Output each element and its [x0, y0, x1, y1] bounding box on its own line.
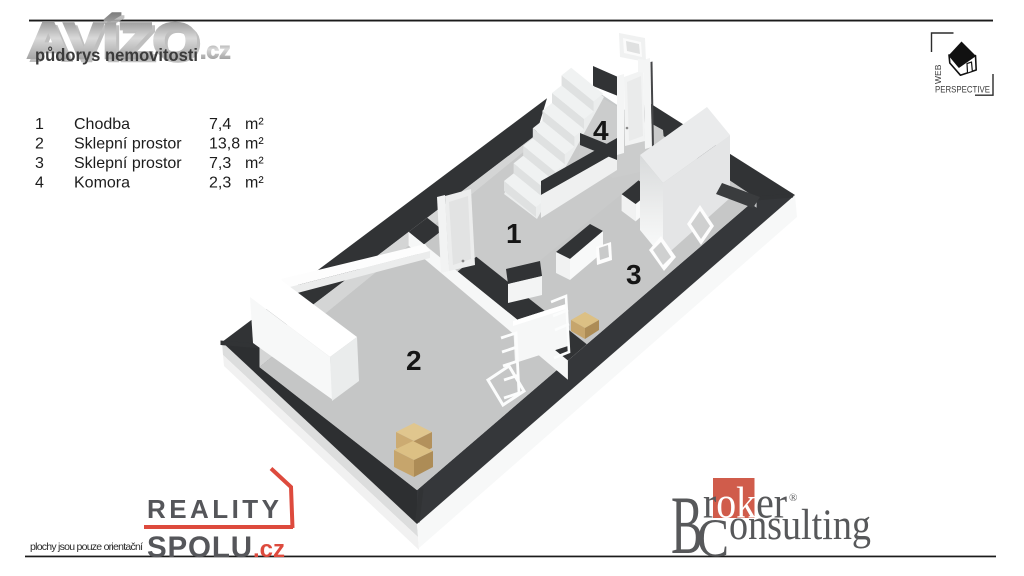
svg-text:onsulting: onsulting	[729, 502, 871, 549]
svg-text:7,3: 7,3	[209, 155, 231, 172]
svg-text:WEB: WEB	[933, 64, 943, 84]
svg-text:1: 1	[35, 116, 44, 133]
svg-text:SPOLU: SPOLU	[147, 531, 252, 564]
svg-text:Chodba: Chodba	[74, 116, 130, 133]
svg-text:m²: m²	[245, 136, 264, 153]
svg-text:2: 2	[406, 345, 422, 376]
svg-text:3: 3	[626, 259, 642, 290]
svg-text:7,4: 7,4	[209, 116, 231, 133]
svg-text:PERSPECTIVE: PERSPECTIVE	[935, 85, 990, 95]
svg-text:plochy jsou pouze orientační: plochy jsou pouze orientační	[30, 541, 143, 553]
svg-text:m²: m²	[245, 116, 264, 133]
svg-text:1: 1	[506, 218, 522, 249]
svg-text:m²: m²	[245, 155, 264, 172]
svg-text:4: 4	[593, 115, 609, 146]
svg-text:2,3: 2,3	[209, 175, 231, 192]
svg-text:4: 4	[35, 175, 44, 192]
svg-text:13,8: 13,8	[209, 136, 240, 153]
svg-text:C: C	[697, 508, 729, 568]
svg-text:Komora: Komora	[74, 175, 130, 192]
svg-text:Sklepní prostor: Sklepní prostor	[74, 155, 182, 172]
svg-text:půdorys nemovitosti: půdorys nemovitosti	[35, 45, 198, 65]
svg-text:3: 3	[35, 155, 44, 172]
svg-text:.cz: .cz	[200, 38, 231, 64]
svg-text:m²: m²	[245, 175, 264, 192]
svg-text:Sklepní prostor: Sklepní prostor	[74, 136, 182, 153]
svg-text:.cz: .cz	[253, 536, 285, 563]
svg-text:2: 2	[35, 136, 44, 153]
